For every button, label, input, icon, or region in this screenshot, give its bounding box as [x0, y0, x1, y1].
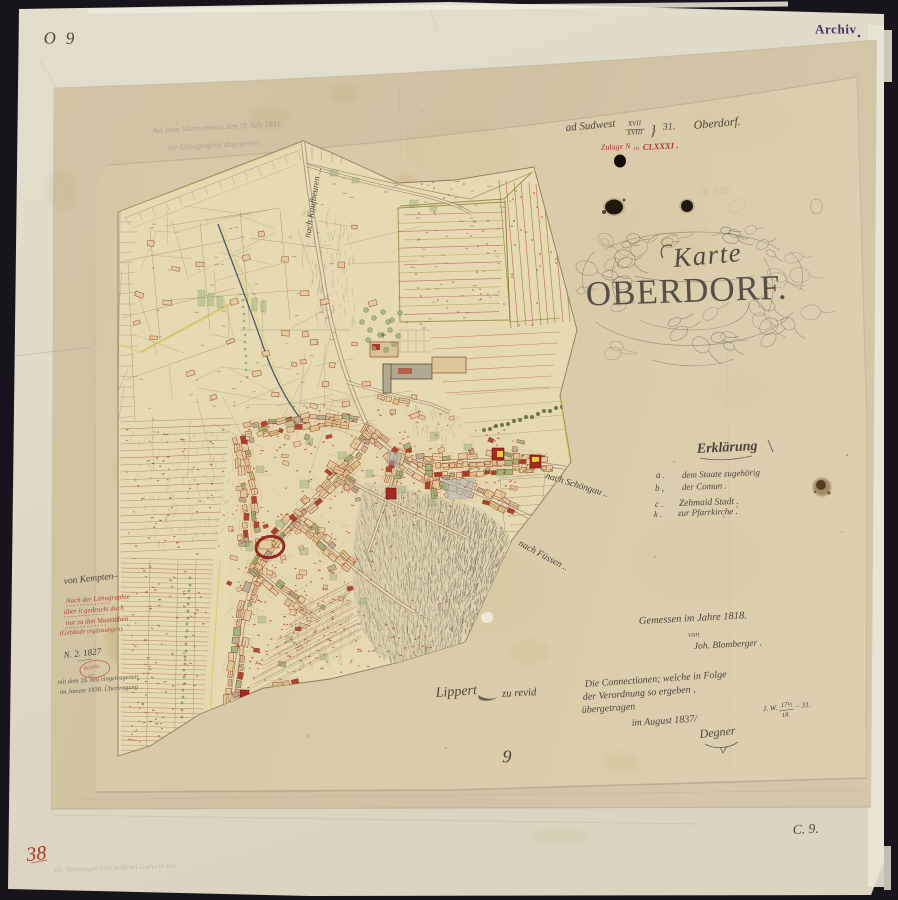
- svg-text:ΙΕ ΥΔΥ: ΙΕ ΥΔΥ: [698, 184, 732, 198]
- svg-text:17½: 17½: [781, 701, 793, 709]
- svg-text:18.: 18.: [782, 711, 791, 719]
- svg-text:Archiv: Archiv: [815, 22, 857, 37]
- svg-text:a .: a .: [656, 470, 665, 480]
- svg-text:9: 9: [65, 29, 75, 48]
- svg-text:zu revid: zu revid: [501, 686, 538, 700]
- svg-text:c .: c .: [655, 499, 664, 509]
- svg-text:ro: ro: [634, 146, 639, 152]
- svg-text:O: O: [43, 28, 57, 48]
- svg-text:}: }: [650, 123, 656, 139]
- svg-text:der Comun .: der Comun .: [682, 480, 727, 492]
- svg-text:zur Pfarrkirche .: zur Pfarrkirche .: [677, 506, 738, 518]
- svg-text:CLXXXI .: CLXXXI .: [643, 140, 679, 152]
- svg-text:J. W.: J. W.: [763, 703, 778, 713]
- svg-text:– 31.: – 31.: [795, 700, 812, 710]
- svg-text:von: von: [688, 629, 700, 639]
- svg-text:Zulage N: Zulage N: [601, 141, 632, 152]
- svg-text:31.: 31.: [661, 121, 675, 133]
- svg-text:9: 9: [502, 746, 512, 767]
- svg-text:b ,: b ,: [655, 483, 664, 493]
- svg-text:XVII: XVII: [627, 119, 642, 128]
- svg-text:k .: k .: [654, 509, 662, 519]
- svg-text:OBERDORF.: OBERDORF.: [585, 268, 788, 314]
- svg-text:C. 9.: C. 9.: [792, 821, 819, 837]
- svg-text:Lippert: Lippert: [434, 683, 478, 701]
- svg-text:38: 38: [24, 842, 47, 866]
- svg-text:Karte: Karte: [671, 237, 743, 273]
